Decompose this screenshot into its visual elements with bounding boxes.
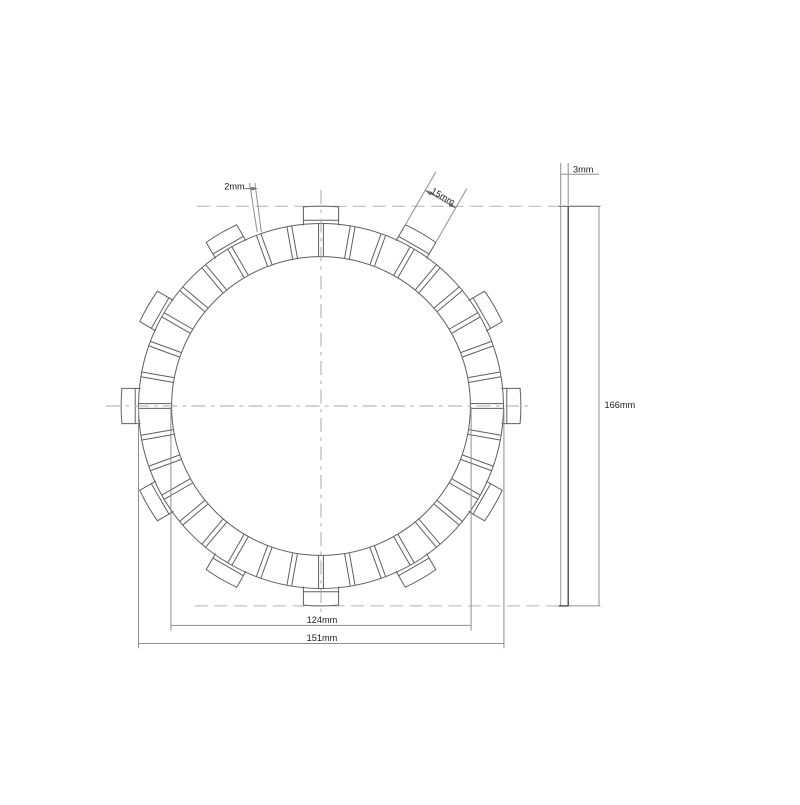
svg-text:15mm: 15mm bbox=[429, 186, 456, 208]
svg-text:2mm: 2mm bbox=[224, 182, 245, 192]
svg-text:3mm: 3mm bbox=[573, 164, 594, 174]
svg-text:124mm: 124mm bbox=[307, 615, 338, 625]
svg-text:151mm: 151mm bbox=[307, 633, 338, 643]
svg-text:166mm: 166mm bbox=[605, 400, 636, 410]
